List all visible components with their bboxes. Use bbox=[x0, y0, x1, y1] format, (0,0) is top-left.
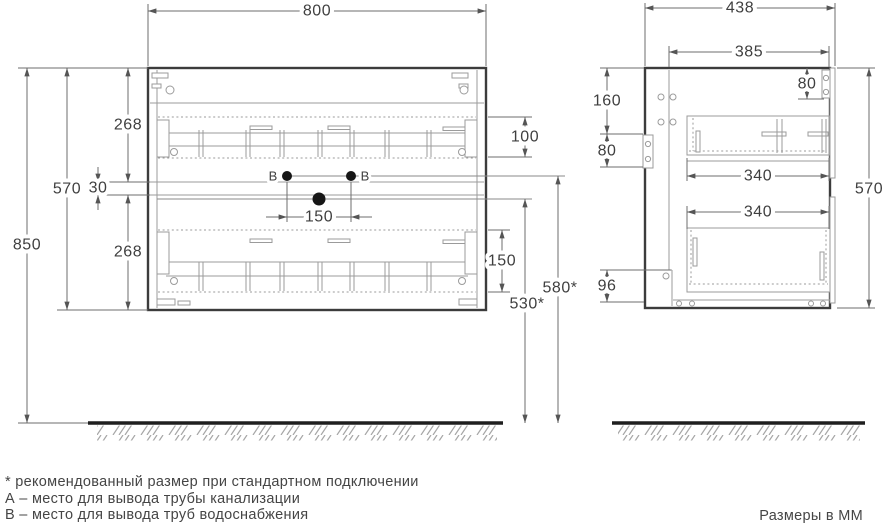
label-hole-b-left: B bbox=[269, 169, 278, 184]
dim-side-hinge-offset: 160 bbox=[593, 93, 621, 110]
dim-front-gap: 30 bbox=[89, 180, 108, 197]
dim-front-drain-height: 530* bbox=[510, 296, 545, 313]
water-supply-hole-b-left bbox=[282, 171, 292, 181]
dim-side-bottom-opening: 96 bbox=[598, 278, 617, 295]
dim-side-lower-drawer-depth: 340 bbox=[744, 204, 772, 221]
dim-front-width: 800 bbox=[303, 3, 331, 20]
note-recommended-size: * рекомендованный размер при стандартном… bbox=[5, 474, 419, 491]
dim-side-top-offset: 80 bbox=[798, 76, 817, 93]
floor bbox=[88, 423, 865, 441]
dim-front-upper-drawer: 268 bbox=[114, 117, 142, 134]
dim-front-lower-drawer: 268 bbox=[114, 244, 142, 261]
note-hole-a: А – место для вывода трубы канализации bbox=[5, 491, 419, 508]
note-hole-b: B – место для вывода труб водоснабжения bbox=[5, 507, 419, 524]
dim-side-bracket-height: 80 bbox=[598, 143, 617, 160]
floor-hatching-right bbox=[618, 426, 860, 441]
dim-front-cabinet-height: 570 bbox=[53, 181, 81, 198]
water-supply-hole-b-right bbox=[346, 171, 356, 181]
dim-front-supply-height: 580* bbox=[543, 280, 578, 297]
dim-front-total-height: 850 bbox=[13, 237, 41, 254]
dim-side-upper-drawer-depth: 340 bbox=[744, 168, 772, 185]
label-hole-b-right: B bbox=[361, 169, 370, 184]
dim-side-cabinet-height: 570 bbox=[855, 181, 883, 198]
side-view-cabinet bbox=[643, 68, 835, 308]
dim-front-lower-inset: 150 bbox=[488, 253, 516, 270]
side-upper-drawer bbox=[687, 116, 829, 161]
units-label: Размеры в ММ bbox=[759, 508, 863, 524]
footer-notes: * рекомендованный размер при стандартном… bbox=[5, 474, 419, 524]
drawing-canvas: 800 850 570 268 268 30 100 150 150 530* … bbox=[0, 0, 884, 528]
drain-hole-a bbox=[313, 193, 326, 206]
dim-front-hole-spacing: 150 bbox=[305, 209, 333, 226]
technical-drawing: 800 850 570 268 268 30 100 150 150 530* … bbox=[0, 0, 884, 528]
dim-side-depth: 438 bbox=[726, 0, 754, 17]
dim-side-inner-depth: 385 bbox=[735, 44, 763, 61]
dim-front-upper-inset: 100 bbox=[511, 129, 539, 146]
floor-hatching-left bbox=[97, 426, 497, 441]
